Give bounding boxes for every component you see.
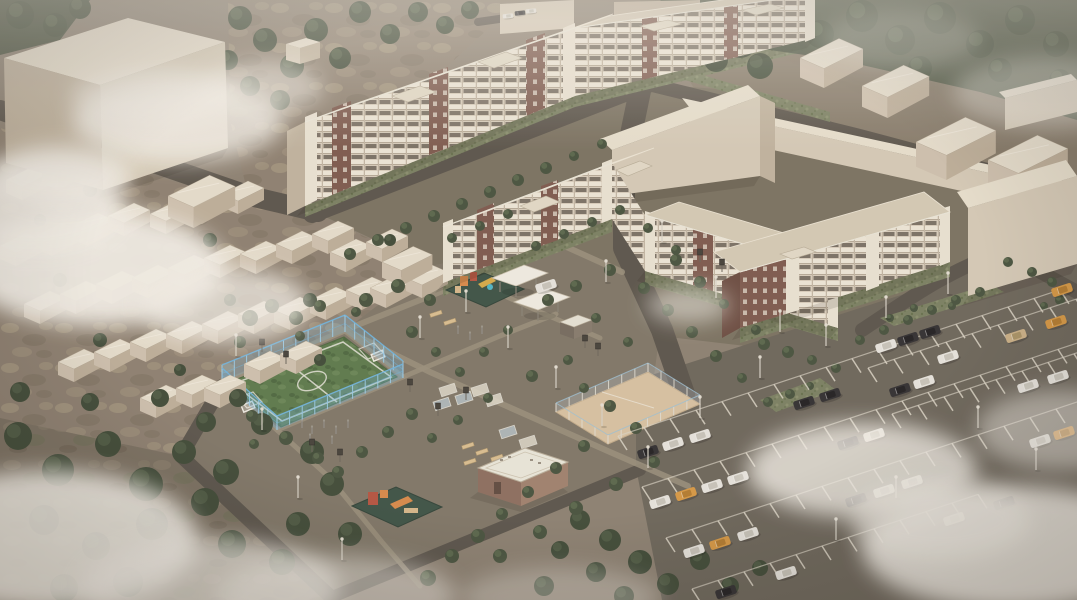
render-canvas [0, 0, 1077, 600]
vignette [0, 0, 1077, 600]
atmosphere-layer [0, 0, 1077, 600]
architectural-render [0, 0, 1077, 600]
